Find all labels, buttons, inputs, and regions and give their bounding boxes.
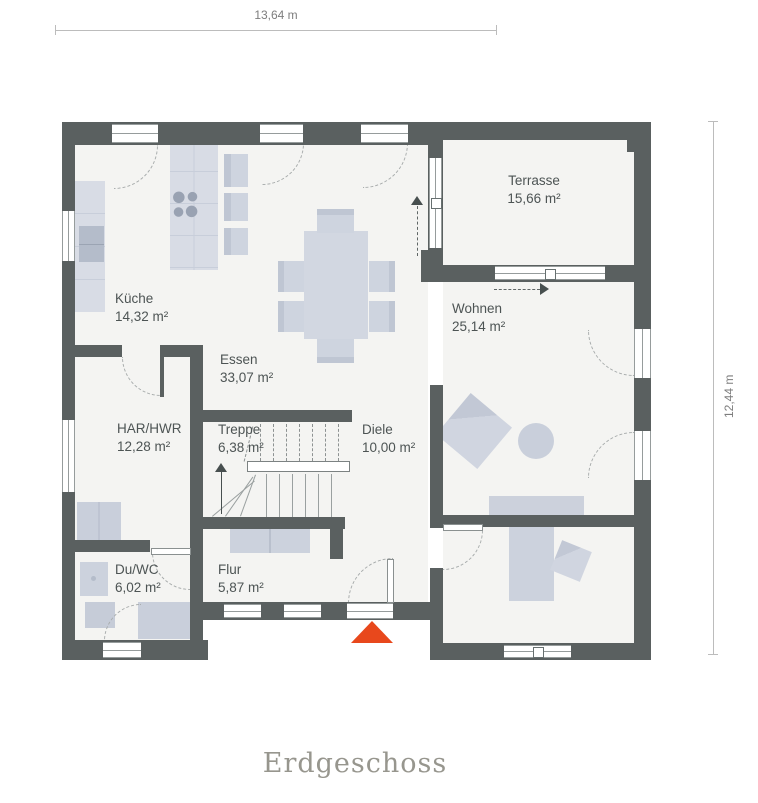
stair-lower-flight — [292, 474, 293, 517]
entrance-triangle-icon — [351, 621, 393, 643]
room-name: Terrasse — [494, 172, 574, 190]
window-handle-icon — [533, 647, 544, 658]
bar-stool — [224, 154, 248, 187]
bar-stool — [224, 193, 248, 221]
room-label-treppe: Treppe 6,38 m² — [218, 421, 264, 456]
window — [62, 211, 75, 261]
stair-upper-flight — [325, 424, 326, 461]
stair-upper-flight — [286, 424, 287, 461]
window — [62, 420, 75, 492]
window — [504, 645, 571, 658]
stair-upper-flight — [312, 424, 313, 461]
desk — [509, 522, 554, 601]
wall-har-duwc — [62, 540, 150, 552]
stair-landing-rail — [247, 461, 350, 472]
sliding-door-handle-icon — [431, 198, 442, 209]
window — [224, 604, 261, 618]
room-name: Flur — [218, 561, 264, 579]
washbasin-drain-icon — [91, 576, 96, 581]
room-label-flur: Flur 5,87 m² — [218, 561, 264, 596]
dimension-width-label: 13,64 m — [226, 8, 326, 22]
wall-kueche-har-left — [62, 345, 122, 357]
room-area: 25,14 m² — [452, 318, 505, 336]
wall-diele-wohnen-upper — [430, 385, 443, 528]
stair-lower-flight — [279, 474, 280, 517]
room-name: Diele — [362, 421, 415, 439]
duwc-door-leaf — [151, 548, 191, 555]
floor-plan: 13,64 m 12,44 m — [0, 0, 758, 803]
room-name: Treppe — [218, 421, 264, 439]
wall-terrace-right — [634, 122, 651, 282]
stair-upper-flight — [299, 424, 300, 461]
window — [284, 604, 321, 618]
dining-chair — [278, 301, 304, 332]
stair-upper-flight — [338, 424, 339, 461]
room-area: 15,66 m² — [494, 190, 574, 208]
dimension-height-tick-top — [708, 121, 718, 122]
room-area: 6,02 m² — [115, 579, 161, 597]
bar-stool — [224, 228, 248, 255]
wall-stair-bottom — [203, 517, 345, 529]
window — [634, 329, 651, 378]
dining-chair — [278, 261, 304, 292]
dimension-width-tick-right — [496, 25, 497, 35]
dimension-width-line — [55, 30, 497, 31]
terrace-access-arrow-line — [417, 206, 418, 256]
wall-stair-return — [330, 517, 343, 559]
office-door-leaf — [443, 524, 483, 531]
dimension-width-tick-left — [55, 25, 56, 35]
room-area: 33,07 m² — [220, 369, 273, 387]
terrace-access-arrow-line — [494, 289, 540, 290]
window — [634, 431, 651, 480]
room-name: Du/WC — [115, 561, 161, 579]
dining-chair — [317, 339, 354, 363]
room-label-har-hwr: HAR/HWR 12,28 m² — [117, 420, 182, 455]
room-label-terrasse: Terrasse 15,66 m² — [494, 172, 574, 207]
dimension-height-label: 12,44 m — [722, 358, 736, 418]
terrace-sliding-window — [495, 266, 605, 280]
dining-chair — [369, 261, 395, 292]
entrance-door — [347, 603, 393, 619]
room-area: 10,00 m² — [362, 439, 415, 457]
dining-chair — [369, 301, 395, 332]
room-label-kueche: Küche 14,32 m² — [115, 290, 168, 325]
wall-terrace-top — [443, 122, 651, 140]
har-door-leaf — [160, 357, 164, 397]
stair-lower-flight — [318, 474, 319, 517]
stair-lower-flight — [331, 474, 332, 517]
window — [103, 642, 141, 658]
page-title: Erdgeschoss — [55, 748, 655, 779]
room-area: 12,28 m² — [117, 438, 182, 456]
oven-appliance — [79, 226, 104, 262]
room-name: Essen — [220, 351, 273, 369]
wall-corner-block — [421, 250, 443, 282]
stair-up-arrow-icon — [215, 463, 227, 472]
room-label-diele: Diele 10,00 m² — [362, 421, 415, 456]
room-label-du-wc: Du/WC 6,02 m² — [115, 561, 161, 596]
sideboard — [230, 529, 310, 553]
room-label-essen: Essen 33,07 m² — [220, 351, 273, 386]
wall-har-treppe — [190, 345, 203, 602]
dining-table — [304, 231, 368, 339]
room-name: HAR/HWR — [117, 420, 182, 438]
terrace-access-arrow-icon — [411, 196, 423, 205]
sliding-window-handle-icon — [545, 269, 556, 280]
room-name: Wohnen — [452, 300, 505, 318]
window — [361, 124, 408, 143]
terrace-sliding-door — [429, 158, 442, 248]
wall-diele-wohnen-lower — [430, 568, 443, 608]
room-area: 6,38 m² — [218, 439, 264, 457]
room-name: Küche — [115, 290, 168, 308]
wall-exterior-left — [62, 122, 75, 660]
room-area: 5,87 m² — [218, 579, 264, 597]
coffee-table — [518, 423, 554, 459]
window — [260, 124, 303, 143]
stair-upper-flight — [273, 424, 274, 461]
room-label-wohnen: Wohnen 25,14 m² — [452, 300, 505, 335]
dimension-height-tick-bottom — [708, 654, 718, 655]
stair-lower-flight — [305, 474, 306, 517]
shower — [138, 602, 190, 639]
window — [112, 124, 158, 143]
dining-chair — [317, 209, 354, 233]
terrace-access-arrow-icon — [540, 283, 549, 295]
stair-direction-line — [221, 472, 222, 514]
entrance-door-leaf — [387, 559, 394, 603]
washer-dryer — [77, 502, 121, 540]
dimension-height-line — [713, 121, 714, 655]
stair-lower-flight — [266, 474, 267, 517]
room-area: 14,32 m² — [115, 308, 168, 326]
cooktop-icon — [171, 189, 200, 221]
